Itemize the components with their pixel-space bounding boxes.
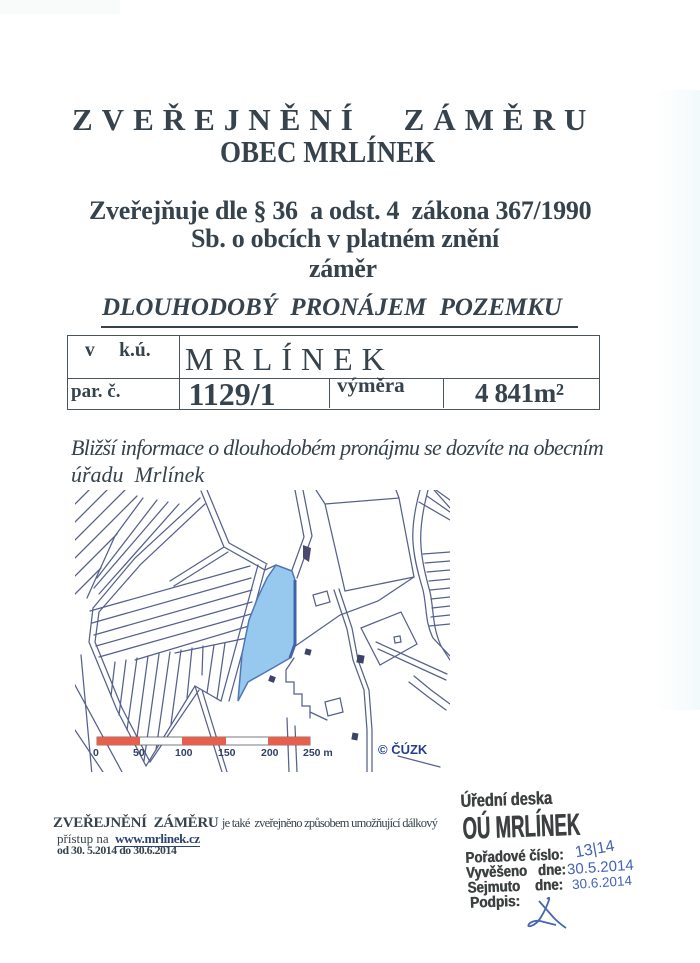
svg-text:150: 150 [218,747,236,759]
svg-text:200: 200 [261,747,279,759]
svg-text:250 m: 250 m [303,747,333,759]
svg-text:0: 0 [93,747,99,759]
svg-text:© ČÚZK: © ČÚZK [378,742,428,757]
svg-text:100: 100 [175,747,193,759]
svg-text:50: 50 [133,747,145,759]
